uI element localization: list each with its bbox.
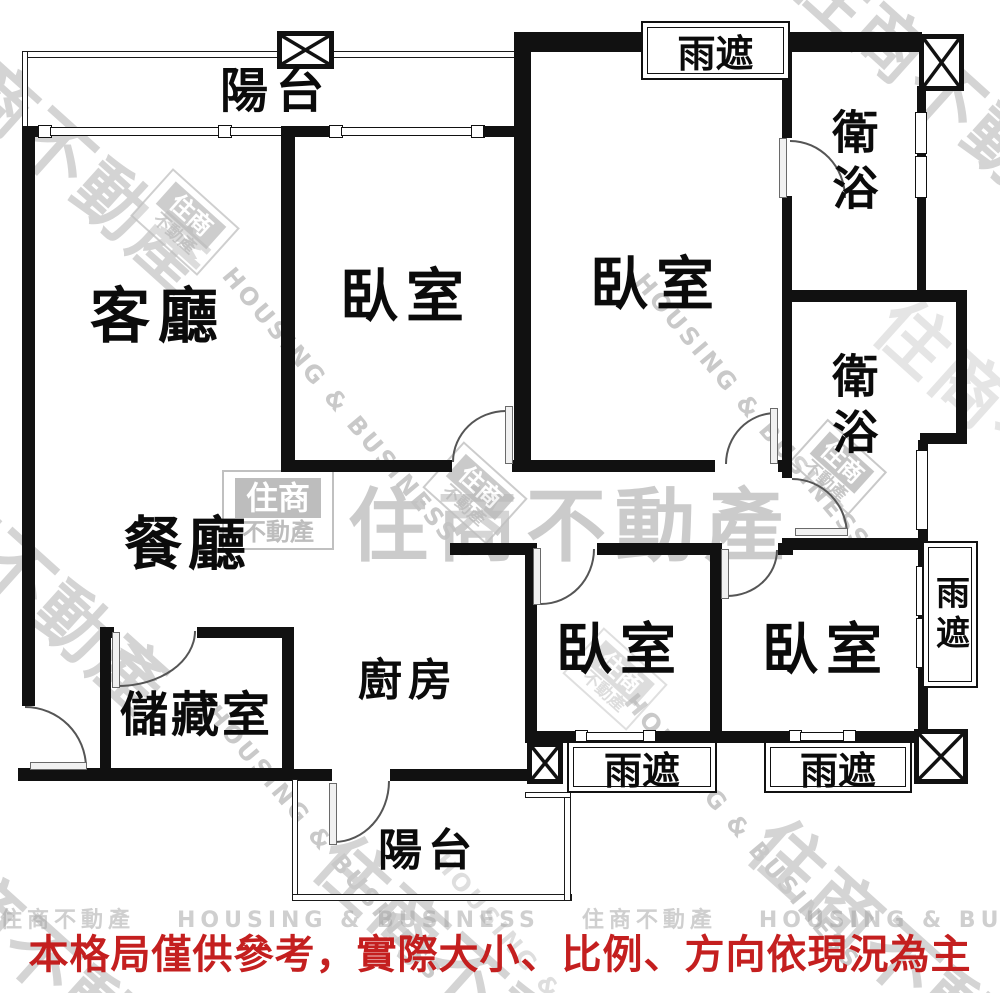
window [230, 127, 283, 136]
wall [390, 769, 528, 781]
door-arc [727, 550, 778, 597]
wall [100, 627, 111, 779]
wall [788, 32, 922, 52]
door-leaf [533, 548, 541, 605]
wall [292, 779, 298, 901]
wall [450, 543, 537, 555]
door-leaf [779, 138, 787, 198]
wall [597, 543, 722, 555]
wall [782, 196, 792, 302]
window [916, 450, 928, 530]
wall [514, 32, 645, 52]
wall [564, 795, 571, 901]
door-leaf [112, 632, 120, 688]
room-label-bath-1: 衛浴 [828, 108, 876, 220]
door-leaf [329, 783, 337, 845]
canopy-box-right: 雨遮 [922, 541, 978, 688]
window [341, 127, 473, 136]
wall [525, 792, 571, 798]
wall [782, 293, 792, 478]
wall [514, 32, 531, 472]
door-leaf [770, 408, 778, 464]
column-box [914, 729, 968, 784]
window [915, 112, 927, 154]
room-label-storage: 儲藏室 [120, 690, 273, 740]
door-leaf [795, 528, 848, 536]
door-arc [25, 706, 87, 768]
wall [22, 51, 517, 58]
wall [778, 460, 792, 472]
room-label-bath-2: 衛浴 [828, 352, 876, 464]
door-arc [725, 412, 776, 464]
window [50, 127, 220, 136]
wall [281, 460, 452, 472]
wall [782, 290, 967, 302]
wall [282, 627, 294, 779]
wall [782, 538, 925, 550]
window [915, 156, 927, 198]
room-label-balcony-top: 陽台 [220, 66, 332, 116]
x-mark [924, 39, 959, 86]
room-label-bedroom-1: 臥室 [340, 266, 472, 327]
canopy-label: 雨遮 [800, 740, 876, 795]
floor-plan: 住商不動產 住商不動產 住商不動產 住商不動產 住商不動產 住商不動產 住商不動… [0, 0, 1000, 993]
door-arc [541, 549, 595, 605]
room-label-bedroom-3: 臥室 [556, 622, 684, 681]
wall [512, 460, 715, 472]
wall [293, 769, 332, 781]
room-label-dining: 餐廳 [124, 514, 252, 575]
wall [956, 293, 967, 443]
x-mark [919, 734, 963, 779]
canopy-box-top: 雨遮 [641, 21, 790, 80]
x-mark [532, 747, 558, 779]
room-label-balcony-bottom: 陽台 [378, 828, 478, 874]
room-label-bedroom-4: 臥室 [762, 622, 890, 681]
wall [22, 126, 35, 706]
wall [281, 131, 295, 472]
door-arc [452, 410, 506, 462]
door-leaf [505, 406, 513, 464]
disclaimer-text: 本格局僅供參考，實際大小、比例、方向依現況為主 [0, 922, 1000, 980]
wall [292, 894, 572, 901]
column-box [919, 34, 964, 91]
wall [197, 627, 293, 638]
room-label-living: 客廳 [90, 286, 226, 349]
canopy-label: 雨遮 [677, 23, 753, 78]
door-arc [118, 631, 196, 687]
column-box [527, 742, 563, 784]
canopy-box-bottom-left: 雨遮 [567, 741, 717, 793]
wall [483, 126, 517, 137]
door-leaf [30, 762, 87, 770]
wall [22, 51, 28, 131]
canopy-label: 雨遮 [604, 740, 680, 795]
door-leaf [721, 549, 729, 599]
canopy-box-bottom-right: 雨遮 [764, 741, 912, 793]
canopy-label: 雨遮 [926, 575, 975, 655]
room-label-kitchen: 廚房 [358, 658, 458, 704]
x-mark [282, 36, 329, 64]
room-label-bedroom-2: 臥室 [590, 254, 722, 315]
